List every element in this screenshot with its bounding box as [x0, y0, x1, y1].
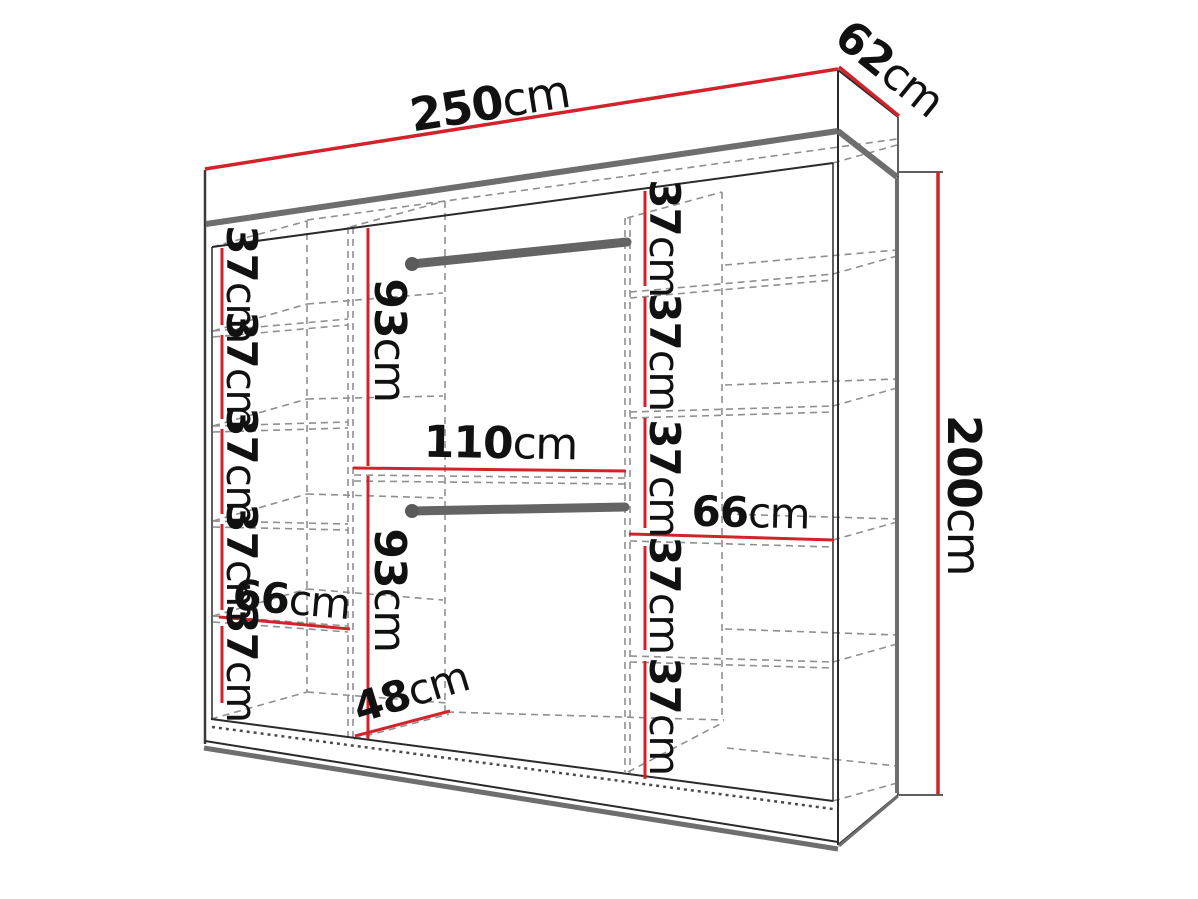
- width-250-label: 250cm: [406, 64, 573, 142]
- wardrobe-dimension-diagram: 250cm 62cm 200cm 93cm 93cm 110cm 48cm 66…: [0, 0, 1198, 899]
- right-shelf-37-label-1: 37cm: [640, 179, 689, 296]
- left-shelf-37-label-4: 37cm: [217, 503, 266, 620]
- right-column-shelf-labels: 37cm 37cm 37cm 37cm 37cm: [640, 179, 689, 774]
- lower-hanging-93-label: 93cm: [364, 528, 415, 651]
- right-shelf-37-label-4: 37cm: [640, 536, 689, 653]
- right-column-width-66-label: 66cm: [691, 486, 810, 538]
- upper-hanging-93-label: 93cm: [364, 278, 415, 401]
- right-shelf-37-label-2: 37cm: [640, 293, 689, 410]
- upper-hanging-rod: [405, 242, 627, 271]
- lower-hanging-rod: [405, 504, 625, 518]
- right-shelf-37-label-5: 37cm: [640, 657, 689, 774]
- height-200-label: 200cm: [937, 415, 991, 575]
- middle-width-110-label: 110cm: [423, 417, 577, 471]
- left-column-shelf-labels: 37cm 37cm 37cm 37cm 37cm: [217, 225, 266, 721]
- left-shelf-37-label-5: 37cm: [217, 604, 266, 721]
- height-200-dimension-line: [899, 172, 943, 795]
- right-shelf-37-label-3: 37cm: [640, 419, 689, 536]
